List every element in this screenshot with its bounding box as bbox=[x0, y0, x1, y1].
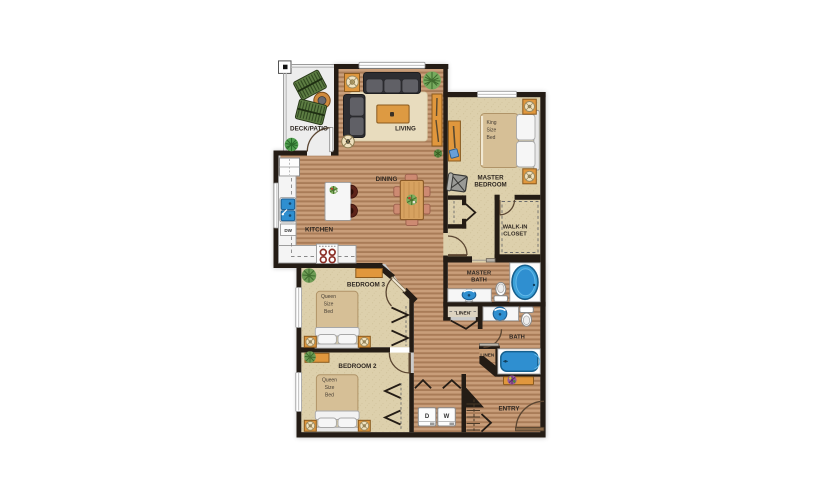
svg-text:Bed: Bed bbox=[487, 135, 496, 141]
svg-text:DECK/PATIO: DECK/PATIO bbox=[290, 126, 328, 133]
svg-text:W: W bbox=[444, 414, 450, 420]
svg-text:King: King bbox=[487, 120, 497, 126]
svg-text:KITCHEN: KITCHEN bbox=[305, 227, 333, 234]
svg-text:CLOSET: CLOSET bbox=[503, 231, 527, 237]
svg-text:Queen: Queen bbox=[322, 378, 337, 384]
svg-text:Size: Size bbox=[325, 385, 335, 391]
svg-text:BATH: BATH bbox=[471, 277, 487, 283]
svg-text:Size: Size bbox=[324, 302, 334, 308]
svg-text:WALK-IN: WALK-IN bbox=[503, 225, 528, 231]
svg-text:Bed: Bed bbox=[325, 393, 334, 399]
svg-text:MASTER: MASTER bbox=[477, 175, 504, 182]
svg-text:LINEN: LINEN bbox=[456, 311, 471, 317]
svg-text:Queen: Queen bbox=[321, 294, 336, 300]
svg-text:BEDROOM 2: BEDROOM 2 bbox=[338, 363, 377, 370]
svg-text:BEDROOM: BEDROOM bbox=[474, 182, 506, 189]
svg-text:BATH: BATH bbox=[509, 335, 525, 341]
svg-text:BEDROOM 3: BEDROOM 3 bbox=[347, 282, 386, 289]
svg-text:LINEN: LINEN bbox=[480, 353, 494, 358]
svg-text:DINING: DINING bbox=[376, 176, 398, 183]
svg-text:Size: Size bbox=[487, 128, 497, 134]
svg-text:LIVING: LIVING bbox=[395, 126, 416, 133]
svg-text:DW: DW bbox=[284, 228, 292, 233]
svg-text:D: D bbox=[425, 414, 430, 420]
svg-text:Bed: Bed bbox=[324, 309, 333, 315]
svg-text:ENTRY: ENTRY bbox=[498, 406, 520, 413]
svg-text:MASTER: MASTER bbox=[467, 271, 492, 277]
